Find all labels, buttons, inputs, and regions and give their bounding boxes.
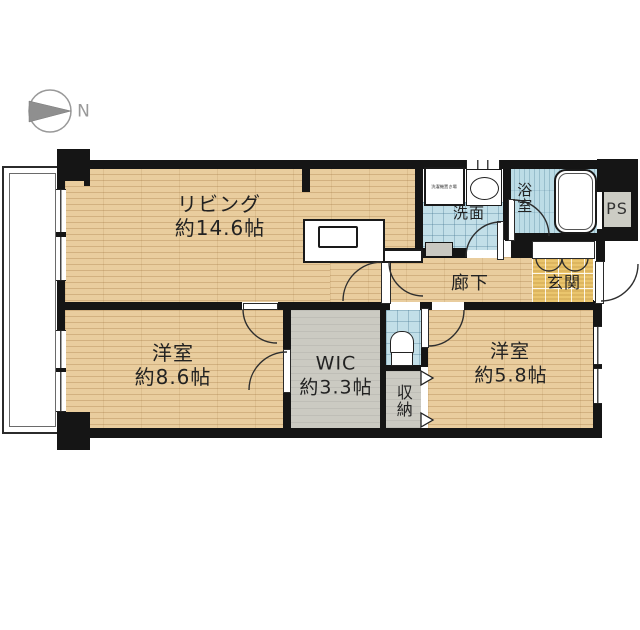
label-wic-size: 約3.3帖 <box>299 378 372 399</box>
label-bedroom-left-size: 約8.6帖 <box>135 366 212 388</box>
shoe-cabinet <box>532 241 595 259</box>
label-bathroom: 浴室 <box>516 182 533 214</box>
compass-label: N <box>77 103 91 122</box>
pillar-top-right <box>597 159 638 192</box>
door-post-living <box>381 258 391 304</box>
wall-right-lower <box>593 300 602 432</box>
north-arrow-icon <box>29 90 71 132</box>
door-leaf-washroom <box>497 221 504 260</box>
opening-washroom-door <box>467 250 501 258</box>
label-storage: 収納 <box>394 384 412 418</box>
kitchen-counter-extension <box>383 249 423 263</box>
door-leaf-wic <box>283 349 291 393</box>
label-entrance: 玄関 <box>547 274 581 292</box>
wall-ps-right <box>633 190 638 230</box>
opening-bedroom-right-door <box>432 302 464 310</box>
washroom-sink-bowl-icon <box>470 177 499 200</box>
wall-living-washroom <box>415 164 423 252</box>
window-bedroom-left-divider <box>56 368 66 372</box>
window-bedroom-right-b <box>594 368 602 404</box>
label-bedroom-left-name: 洋室 <box>152 342 194 364</box>
floor-plan: 洗濯機置き場 N リビング <box>0 0 640 630</box>
wall-top <box>86 160 598 169</box>
label-washroom: 洗面 <box>453 205 485 222</box>
wall-bottom <box>65 428 602 438</box>
wall-shoebox-left <box>511 241 534 258</box>
balcony-inner-line <box>9 173 56 427</box>
washing-machine-area: 洗濯機置き場 <box>424 167 465 206</box>
door-leaf-bedroom-right <box>421 308 429 348</box>
washroom-shelf <box>425 242 453 257</box>
kitchen-sink <box>318 226 358 248</box>
label-pipe-space: PS <box>606 200 628 218</box>
window-living-divider <box>56 232 66 237</box>
window-washroom-top <box>466 160 500 169</box>
window-bedroom-right-a <box>594 326 602 365</box>
bathtub-inner-line <box>558 173 593 230</box>
room-hallway-floor <box>330 257 532 302</box>
wall-kitchen-stub <box>302 168 310 192</box>
toilet-tank-icon <box>391 352 413 366</box>
door-leaf-bedroom-left <box>243 303 278 310</box>
label-living-size: 約14.6帖 <box>175 217 266 239</box>
door-leaf-entrance <box>595 261 604 304</box>
label-hallway: 廊下 <box>451 274 489 294</box>
door-arc-entrance <box>601 264 638 301</box>
wall-top-left-stub <box>84 168 90 186</box>
label-living-name: リビング <box>177 193 261 215</box>
label-wic-name: WIC <box>316 354 357 375</box>
bathtub <box>554 169 597 234</box>
opening-toilet-door <box>390 302 420 310</box>
label-bedroom-right-name: 洋室 <box>490 342 530 363</box>
washing-machine-label: 洗濯機置き場 <box>432 184 458 190</box>
door-leaf-bathroom <box>508 199 515 241</box>
wall-below-ps <box>596 234 605 262</box>
label-bedroom-right-size: 約5.8帖 <box>474 366 547 387</box>
wall-middle-horizontal <box>63 302 602 310</box>
